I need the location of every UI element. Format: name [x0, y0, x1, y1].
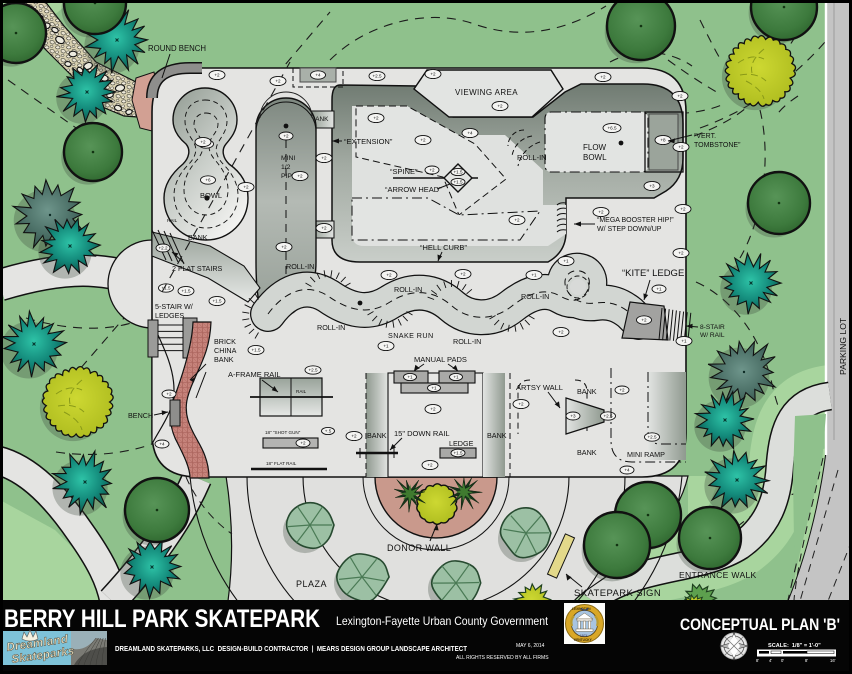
svg-text:18" “SHOT GUN”: 18" “SHOT GUN” — [265, 430, 301, 435]
svg-text:+2: +2 — [214, 73, 220, 78]
svg-text:ROUND BENCH: ROUND BENCH — [148, 44, 206, 53]
svg-text:BANK: BANK — [188, 233, 208, 242]
svg-text:+2: +2 — [678, 145, 684, 150]
svg-text:DREAMLAND SKATEPARKS, LLC DES: DREAMLAND SKATEPARKS, LLC DESIGN-BUILD C… — [115, 644, 467, 653]
svg-text:“ARROW HEAD”: “ARROW HEAD” — [385, 185, 442, 194]
svg-text:BANK: BANK — [487, 431, 507, 440]
svg-text:+2: +2 — [386, 273, 392, 278]
svg-text:+2: +2 — [321, 226, 327, 231]
svg-text:+2: +2 — [558, 330, 564, 335]
svg-text:ROLL-IN: ROLL-IN — [453, 337, 481, 346]
svg-text:+2: +2 — [619, 388, 625, 393]
svg-text:MINI RAMP: MINI RAMP — [627, 450, 665, 459]
svg-text:ROLL-IN: ROLL-IN — [394, 285, 422, 294]
svg-text:+2.5: +2.5 — [308, 368, 318, 373]
svg-text:LEDGE: LEDGE — [449, 439, 474, 448]
svg-text:BERRY HILL PARK SKATEPARK: BERRY HILL PARK SKATEPARK — [4, 605, 320, 633]
svg-text:+2: +2 — [430, 407, 436, 412]
svg-text:KENTUCKY: KENTUCKY — [574, 638, 593, 642]
svg-text:ARTSY WALL: ARTSY WALL — [516, 383, 563, 392]
svg-text:8-STAIR: 8-STAIR — [700, 324, 725, 331]
svg-text:+2: +2 — [427, 463, 433, 468]
svg-text:+4: +4 — [624, 468, 630, 473]
svg-text:+1.5: +1.5 — [181, 289, 191, 294]
svg-text:+2: +2 — [460, 272, 466, 277]
svg-text:+4: +4 — [159, 442, 165, 447]
svg-text:+2: +2 — [300, 441, 306, 446]
svg-text:PARKING LOT: PARKING LOT — [838, 317, 848, 375]
svg-text:FLOW: FLOW — [583, 143, 607, 152]
svg-text:BOWL: BOWL — [200, 191, 222, 200]
svg-text:RAIL: RAIL — [167, 218, 178, 223]
svg-text:0': 0' — [781, 658, 784, 663]
svg-text:MINI: MINI — [281, 155, 295, 162]
svg-text:+3: +3 — [649, 184, 655, 189]
svg-text:+2: +2 — [641, 318, 647, 323]
svg-text:CONCEPTUAL PLAN 'B': CONCEPTUAL PLAN 'B' — [680, 615, 840, 634]
svg-text:DONOR WALL: DONOR WALL — [387, 543, 451, 553]
svg-text:+1.5: +1.5 — [453, 451, 463, 456]
svg-text:1974: 1974 — [580, 634, 588, 638]
svg-text:LEDGES: LEDGES — [155, 311, 184, 320]
svg-text:+2.2: +2.2 — [158, 246, 168, 251]
svg-text:+2: +2 — [518, 402, 524, 407]
svg-text:+1: +1 — [453, 375, 459, 380]
svg-text:+2: +2 — [321, 156, 327, 161]
svg-text:“SPINE”: “SPINE” — [390, 167, 418, 176]
svg-text:+1: +1 — [681, 339, 687, 344]
svg-text:BOWL: BOWL — [583, 153, 607, 162]
svg-text:“KITE” LEDGE: “KITE” LEDGE — [622, 268, 684, 279]
svg-text:VIEWING AREA: VIEWING AREA — [455, 88, 518, 97]
svg-text:+1: +1 — [431, 386, 437, 391]
svg-text:+1: +1 — [531, 273, 537, 278]
svg-text:W/ STEP DOWN/UP: W/ STEP DOWN/UP — [597, 226, 662, 233]
svg-text:“VERT.: “VERT. — [694, 133, 716, 140]
svg-text:BANK: BANK — [367, 431, 387, 440]
svg-text:“HELL CURB”: “HELL CURB” — [420, 243, 467, 252]
svg-text:+2: +2 — [275, 79, 281, 84]
svg-text:+2: +2 — [677, 94, 683, 99]
svg-text:+2: +2 — [243, 185, 249, 190]
svg-text:MANUAL PADS: MANUAL PADS — [414, 355, 467, 364]
svg-text:+2.5: +2.5 — [372, 74, 382, 79]
svg-text:BANK: BANK — [577, 448, 597, 457]
svg-text:+3: +3 — [570, 414, 576, 419]
svg-text:16': 16' — [830, 658, 836, 663]
svg-text:+2: +2 — [514, 218, 520, 223]
svg-text:+2.5: +2.5 — [647, 435, 657, 440]
svg-text:ROLL-IN: ROLL-IN — [317, 323, 345, 332]
svg-text:TOMBSTONE”: TOMBSTONE” — [694, 142, 741, 149]
svg-text:+2: +2 — [497, 104, 503, 109]
svg-text:+2.5: +2.5 — [603, 414, 613, 419]
svg-text:+2: +2 — [598, 210, 604, 215]
svg-text:+1: +1 — [563, 259, 569, 264]
svg-text:+2: +2 — [297, 174, 303, 179]
svg-text:Lexington-Fayette Urban County: Lexington-Fayette Urban County Governmen… — [336, 614, 549, 628]
svg-text:5-STAIR W/: 5-STAIR W/ — [155, 302, 193, 311]
svg-text:ENTRANCE WALK: ENTRANCE WALK — [679, 570, 757, 580]
svg-text:ROLL-IN: ROLL-IN — [286, 262, 314, 271]
svg-text:+2: +2 — [420, 138, 426, 143]
svg-text:PLAZA: PLAZA — [296, 579, 327, 589]
svg-text:A-FRAME RAIL: A-FRAME RAIL — [228, 370, 281, 379]
svg-text:SKATEPARK SIGN: SKATEPARK SIGN — [574, 588, 661, 599]
svg-text:+2: +2 — [351, 434, 357, 439]
svg-text:+1.5: +1.5 — [212, 299, 222, 304]
svg-text:BRICK: BRICK — [214, 337, 236, 346]
svg-text:BANK: BANK — [577, 387, 597, 396]
svg-text:+2: +2 — [200, 140, 206, 145]
svg-text:+2: +2 — [429, 168, 435, 173]
svg-text:+2: +2 — [680, 207, 686, 212]
svg-text:+8: +8 — [660, 138, 666, 143]
svg-text:+1.5: +1.5 — [453, 180, 463, 185]
svg-text:+2: +2 — [283, 134, 289, 139]
svg-text:+2: +2 — [430, 72, 436, 77]
svg-text:8': 8' — [805, 658, 808, 663]
svg-text:MAY 6, 2014: MAY 6, 2014 — [516, 643, 545, 649]
svg-text:+2: +2 — [166, 392, 172, 397]
svg-text:ALL RIGHTS RESERVED BY ALL FIR: ALL RIGHTS RESERVED BY ALL FIRMS — [456, 655, 549, 661]
svg-text:8': 8' — [756, 658, 759, 663]
svg-text:SNAKE RUN: SNAKE RUN — [388, 331, 434, 340]
svg-text:W/ RAIL: W/ RAIL — [700, 332, 725, 339]
svg-text:“EXTENSION”: “EXTENSION” — [344, 137, 393, 146]
svg-text:+2: +2 — [373, 116, 379, 121]
svg-text:+4: +4 — [467, 131, 473, 136]
svg-text:18" FLAT RAIL: 18" FLAT RAIL — [266, 461, 297, 466]
svg-text:+2: +2 — [281, 245, 287, 250]
svg-text:15" DOWN RAIL: 15" DOWN RAIL — [394, 429, 450, 438]
svg-text:+6: +6 — [205, 178, 211, 183]
svg-text:+1: +1 — [383, 344, 389, 349]
svg-text:+1.5: +1.5 — [251, 348, 261, 353]
svg-text:+1: +1 — [407, 375, 413, 380]
svg-text:SCALE: 1/8" = 1'-0": SCALE: 1/8" = 1'-0" — [768, 643, 821, 649]
svg-text:1/2: 1/2 — [281, 164, 291, 171]
svg-text:+.5: +.5 — [325, 429, 332, 434]
svg-text:BANK: BANK — [214, 355, 234, 364]
svg-text:RAIL: RAIL — [296, 389, 307, 394]
svg-text:+2: +2 — [678, 251, 684, 256]
svg-text:+1.5: +1.5 — [453, 170, 463, 175]
svg-text:4': 4' — [769, 658, 772, 663]
svg-text:+2: +2 — [600, 75, 606, 80]
svg-text:+4: +4 — [315, 73, 321, 78]
svg-text:ROLL-IN: ROLL-IN — [521, 292, 549, 301]
svg-text:“MEGA BOOSTER HIP!”: “MEGA BOOSTER HIP!” — [597, 217, 674, 224]
svg-text:CHINA: CHINA — [214, 346, 237, 355]
svg-text:BENCH: BENCH — [128, 411, 153, 420]
svg-text:2 FLAT STAIRS: 2 FLAT STAIRS — [172, 264, 223, 273]
svg-text:+1: +1 — [656, 287, 662, 292]
svg-text:+6.5: +6.5 — [607, 126, 617, 131]
